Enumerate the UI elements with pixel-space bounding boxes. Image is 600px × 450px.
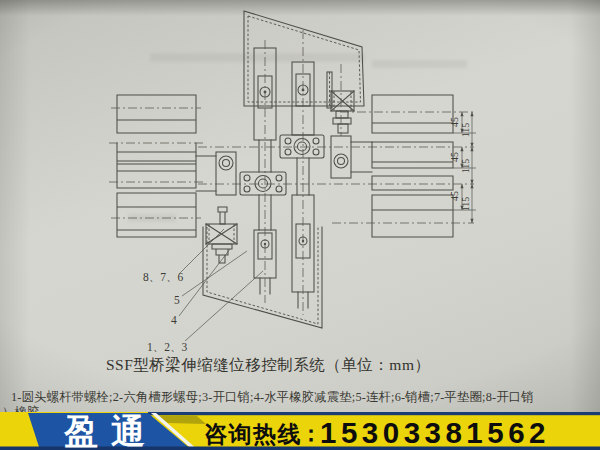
flange-plate-upper bbox=[280, 135, 324, 158]
ad-banner: 盈通 咨询热线 ： 15303381562 bbox=[0, 412, 600, 450]
part-label-5: 5 bbox=[174, 294, 180, 306]
hotline-number: 15303381562 bbox=[320, 416, 550, 449]
parts-legend-line: 1-圆头螺杆带螺栓;2-六角槽形螺母;3-开口销;4-水平橡胶减震垫;5-连杆;… bbox=[11, 389, 596, 406]
side-block-left bbox=[196, 152, 236, 195]
banner-top-strip bbox=[148, 412, 600, 415]
shock-pad-assembly bbox=[206, 207, 237, 263]
photo-of-technical-page: 45 115 45 115 45 115 bbox=[0, 0, 600, 450]
side-block-right bbox=[331, 136, 372, 178]
anchor-bolt-assembly bbox=[327, 64, 354, 136]
dim-gap-1: 45 bbox=[449, 117, 460, 127]
logo-text: 盈通 bbox=[63, 412, 158, 450]
technical-drawing: 45 115 45 115 45 115 bbox=[0, 0, 600, 412]
flange-plate-lower bbox=[240, 172, 286, 195]
hotline-separator: ： bbox=[300, 421, 322, 446]
right-beam-stack bbox=[198, 95, 476, 237]
dim-pitch-3: 115 bbox=[460, 197, 471, 212]
part-label-4: 4 bbox=[171, 314, 177, 326]
paper-showthrough bbox=[128, 53, 467, 222]
part-label-876: 8、7、6 bbox=[143, 271, 184, 283]
link-right bbox=[292, 30, 314, 315]
part-label-123: 1、2、3 bbox=[147, 341, 188, 353]
dim-pitch-1: 115 bbox=[460, 123, 471, 138]
dim-pitch-2: 115 bbox=[460, 159, 471, 174]
hotline-label: 咨询热线 bbox=[204, 421, 302, 447]
dim-gap-2: 45 bbox=[449, 152, 460, 162]
figure-caption: SSF型桥梁伸缩缝位移控制系统（单位：mm） bbox=[106, 355, 526, 376]
dim-gap-3: 45 bbox=[449, 191, 460, 201]
